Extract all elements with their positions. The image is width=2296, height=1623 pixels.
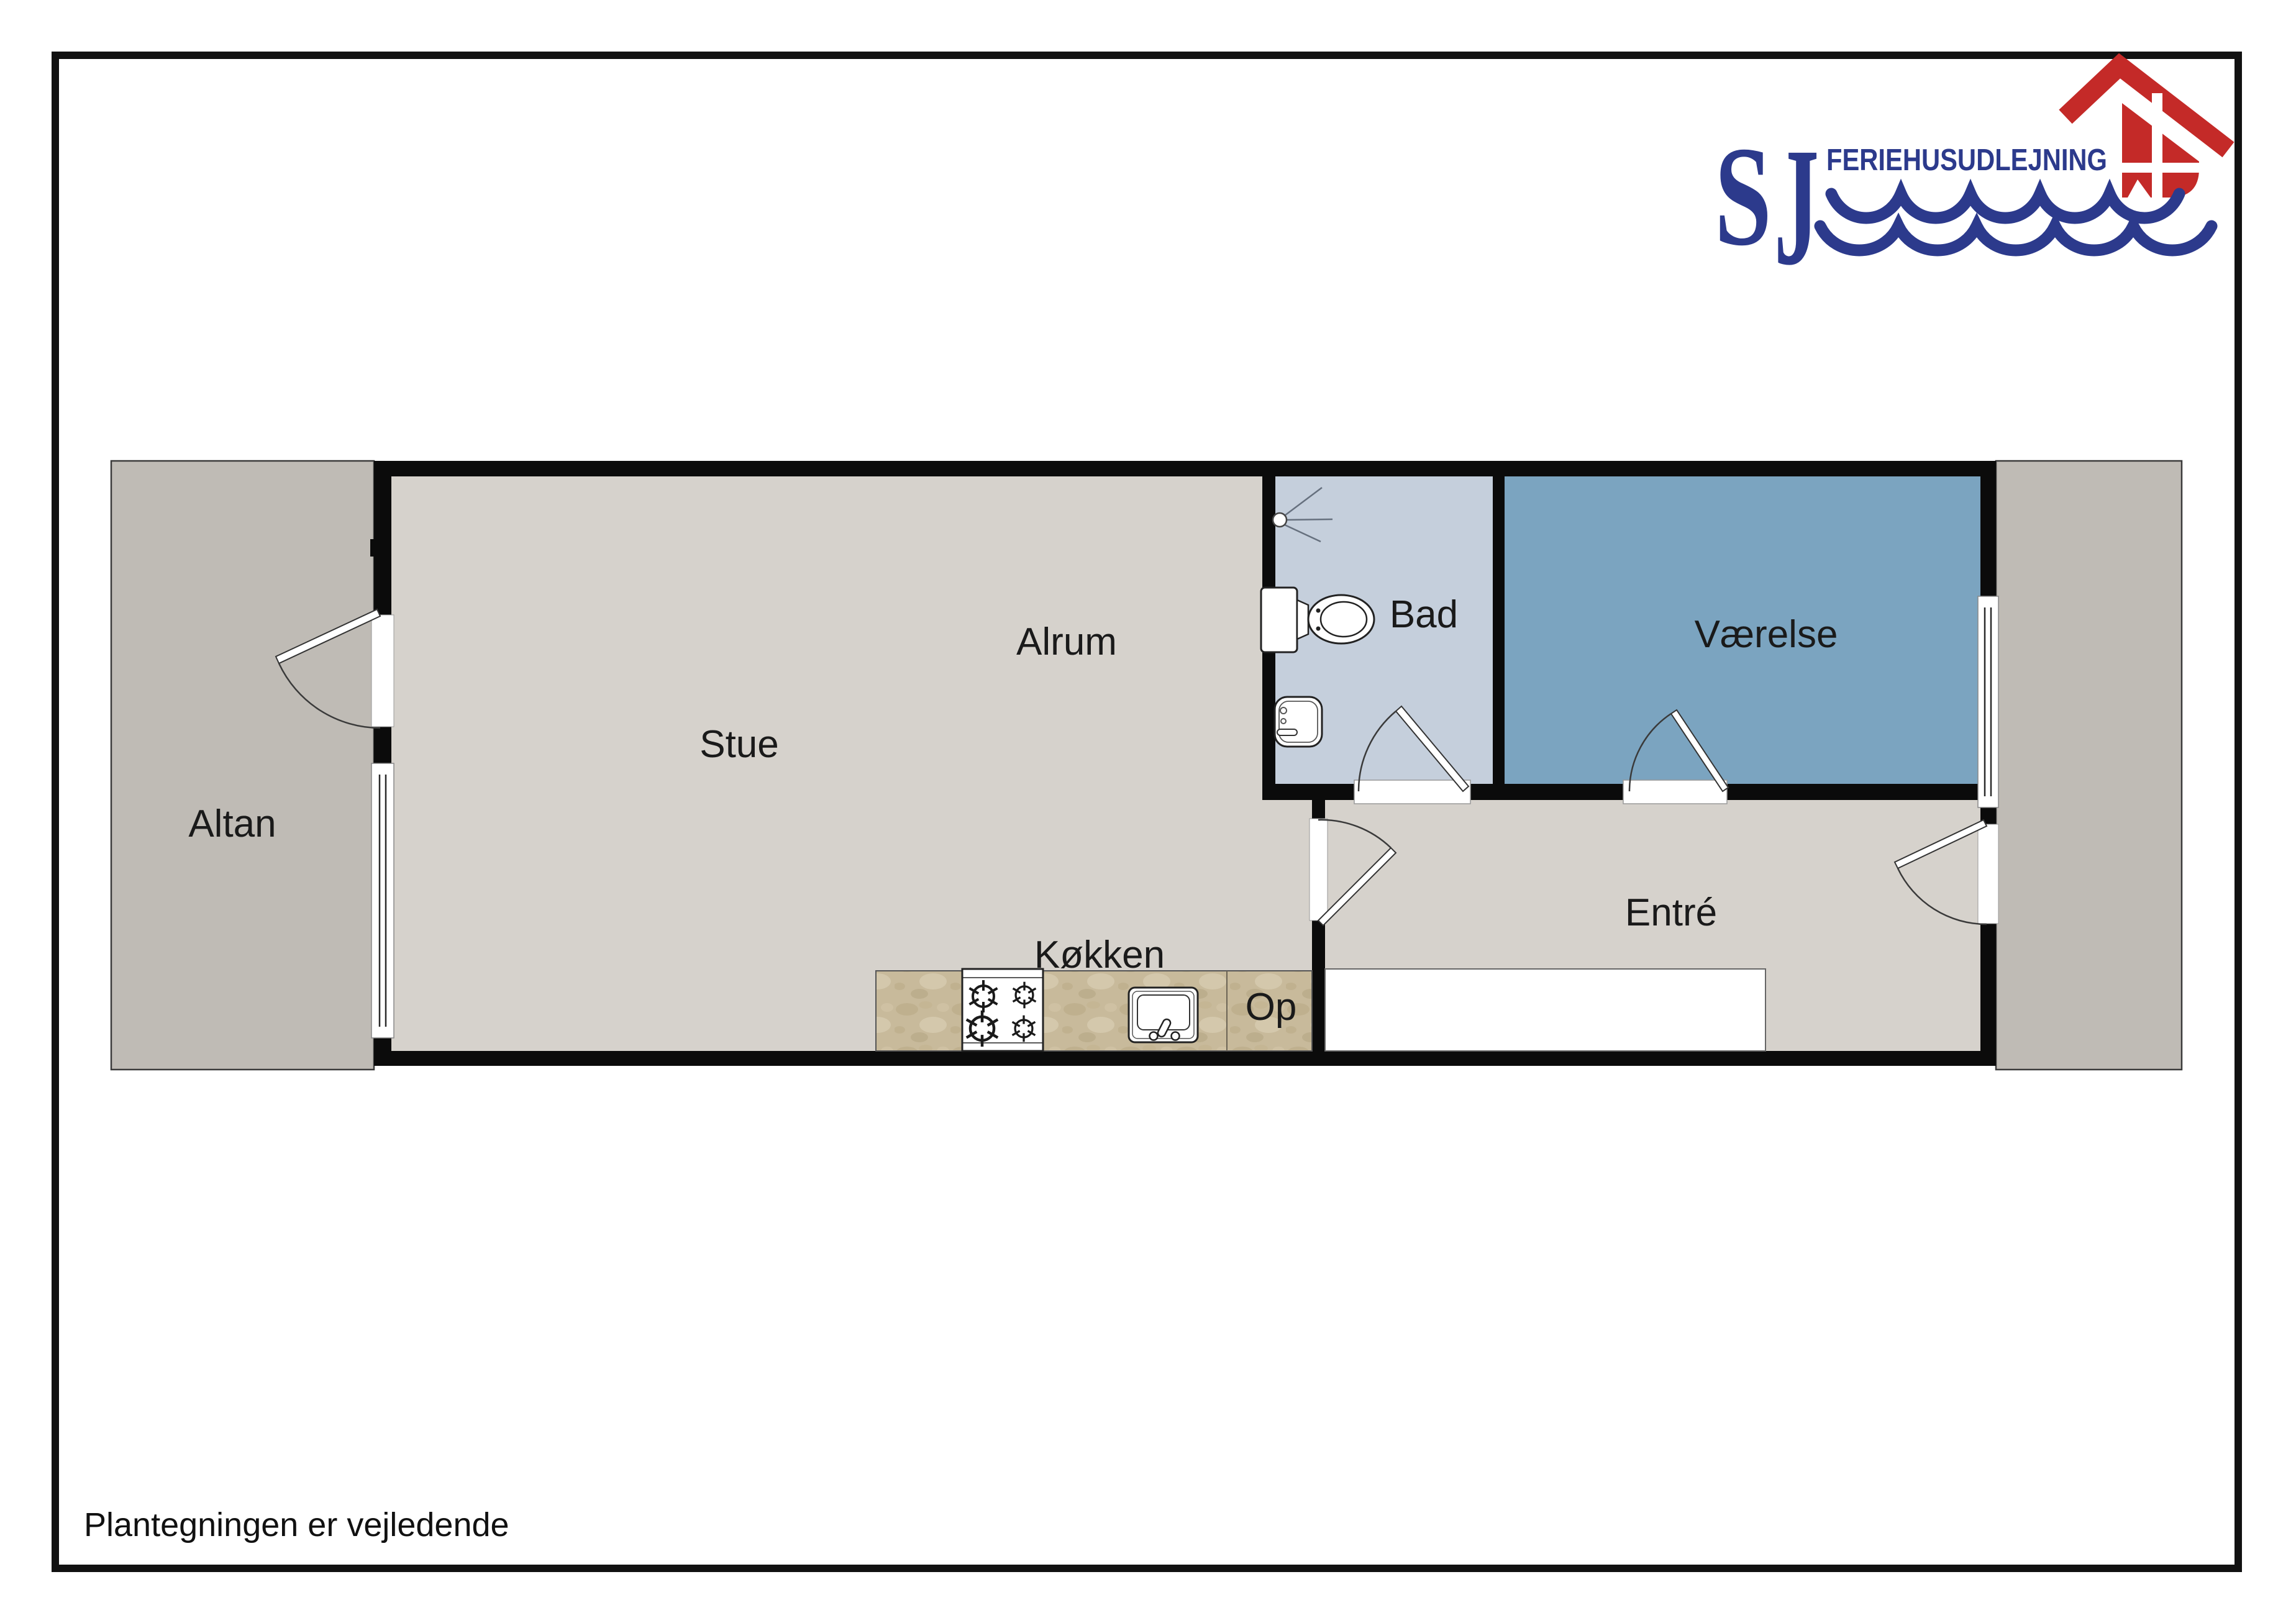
house-icon	[2066, 66, 2228, 205]
bad-door-opening	[1354, 780, 1470, 804]
koekken-entre-door-opening	[1310, 819, 1328, 921]
label-alrum: Alrum	[1016, 621, 1117, 663]
company-logo: S J FERIEHUSUDLEJNING	[1715, 66, 2228, 300]
label-entre: Entré	[1625, 891, 1717, 934]
label-vaerelse: Værelse	[1695, 613, 1838, 656]
floorplan-page: S J FERIEHUSUDLEJNING	[0, 0, 2296, 1623]
stair-void	[1325, 969, 1765, 1051]
vaerelse-door-opening	[1623, 780, 1727, 804]
entre-exterior-door-opening	[1978, 824, 1998, 924]
floorplan: Altan Stue Alrum Køkken Bad Værelse Entr…	[111, 461, 2182, 1070]
logo-monogram-s: S	[1715, 117, 1772, 275]
house-cross-horizontal	[2117, 163, 2204, 173]
hand-basin-icon	[1275, 697, 1322, 747]
room-altan	[111, 461, 374, 1070]
floorplan-svg: S J FERIEHUSUDLEJNING	[0, 0, 2296, 1623]
wall-bad-vaerelse	[1493, 476, 1505, 784]
house-cross-vertical	[2152, 93, 2162, 205]
stove-icon	[962, 969, 1043, 1051]
label-altan: Altan	[188, 802, 276, 845]
label-koekken: Køkken	[1034, 934, 1165, 976]
label-stue: Stue	[699, 723, 779, 766]
kitchen-sink-icon	[1129, 988, 1198, 1042]
wall-nub	[370, 539, 380, 557]
right-terrace	[1996, 461, 2182, 1070]
logo-monogram-j: J	[1774, 113, 1819, 300]
label-op: Op	[1246, 986, 1297, 1029]
label-bad: Bad	[1390, 593, 1458, 636]
logo-wordmark: FERIEHUSUDLEJNING	[1826, 143, 2107, 177]
left-window	[371, 763, 394, 1038]
wave-line-bottom	[1820, 226, 2212, 250]
footnote: Plantegningen er vejledende	[84, 1506, 509, 1543]
altan-door-opening	[371, 615, 394, 727]
vaerelse-window	[1978, 596, 1998, 807]
